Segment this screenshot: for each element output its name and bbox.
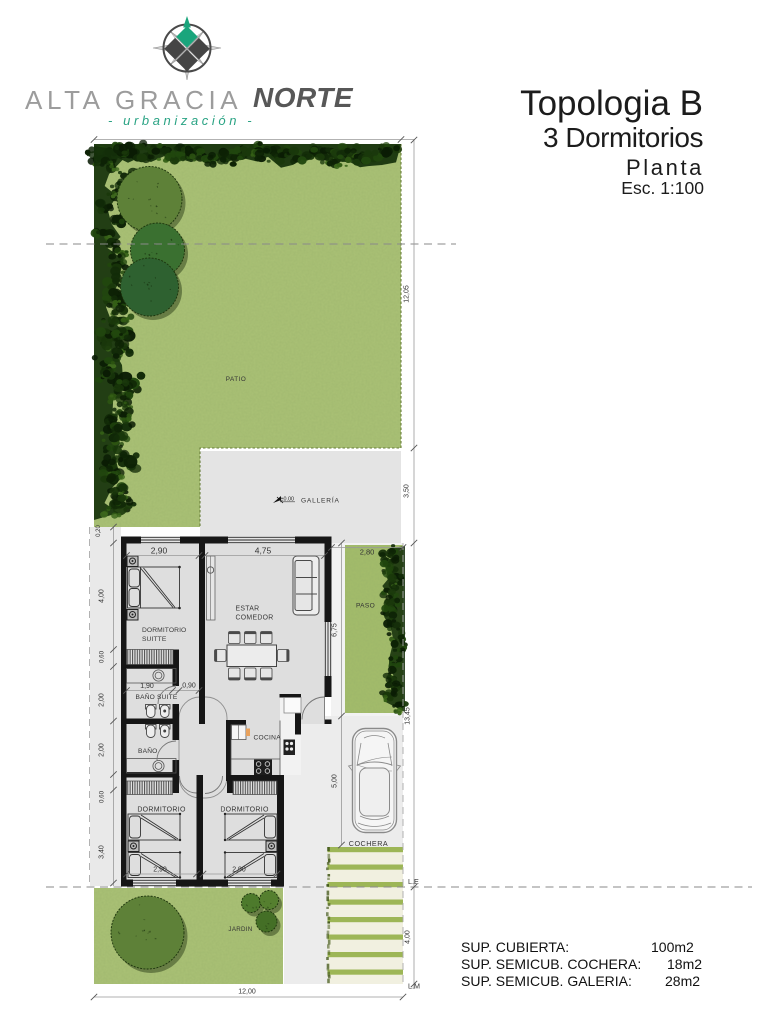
svg-text:12,00: 12,00 xyxy=(238,989,256,996)
svg-text:DORMITORIO: DORMITORIO xyxy=(137,807,186,814)
svg-text:0,60: 0,60 xyxy=(99,650,106,663)
svg-text:2,90: 2,90 xyxy=(153,867,167,874)
svg-text:COCHERA: COCHERA xyxy=(349,839,388,848)
svg-text:0,20: 0,20 xyxy=(96,525,102,537)
svg-text:4,00: 4,00 xyxy=(405,930,412,944)
svg-text:0,90: 0,90 xyxy=(182,683,196,690)
svg-text:COMEDOR: COMEDOR xyxy=(236,615,274,622)
svg-text:SUITTE: SUITTE xyxy=(142,636,167,643)
svg-text:PASO: PASO xyxy=(356,603,375,610)
svg-text:3,40: 3,40 xyxy=(99,845,106,859)
svg-text:L.E: L.E xyxy=(408,877,419,886)
svg-text:PATIO: PATIO xyxy=(226,376,246,383)
svg-text:DORMITORIO: DORMITORIO xyxy=(142,627,186,634)
svg-text:0,60: 0,60 xyxy=(99,790,106,803)
svg-text:4,75: 4,75 xyxy=(255,546,272,556)
svg-text:4,00: 4,00 xyxy=(99,589,106,603)
svg-text:COCINA: COCINA xyxy=(254,735,282,742)
svg-text:BAÑO: BAÑO xyxy=(138,746,158,755)
svg-text:DORMITORIO: DORMITORIO xyxy=(220,807,269,814)
svg-text:L.M: L.M xyxy=(408,982,420,991)
svg-text:2,00: 2,00 xyxy=(99,743,106,757)
svg-text:2,90: 2,90 xyxy=(232,867,246,874)
svg-text:BAÑO SUITE: BAÑO SUITE xyxy=(136,692,178,701)
svg-text:ESTAR: ESTAR xyxy=(236,606,260,613)
svg-text:±0.00: ±0.00 xyxy=(281,496,294,502)
svg-text:12,05: 12,05 xyxy=(404,285,411,303)
svg-text:5,00: 5,00 xyxy=(332,774,339,788)
svg-text:JARDIN: JARDIN xyxy=(228,926,252,933)
svg-text:13,45: 13,45 xyxy=(405,707,412,725)
svg-text:6,75: 6,75 xyxy=(332,623,339,637)
svg-text:2,90: 2,90 xyxy=(151,546,168,556)
svg-text:1,90: 1,90 xyxy=(140,683,154,690)
svg-text:2,80: 2,80 xyxy=(360,548,375,557)
svg-text:3,50: 3,50 xyxy=(404,484,411,498)
svg-text:GALLERÍA: GALLERÍA xyxy=(301,496,340,505)
svg-text:2,00: 2,00 xyxy=(99,693,106,707)
